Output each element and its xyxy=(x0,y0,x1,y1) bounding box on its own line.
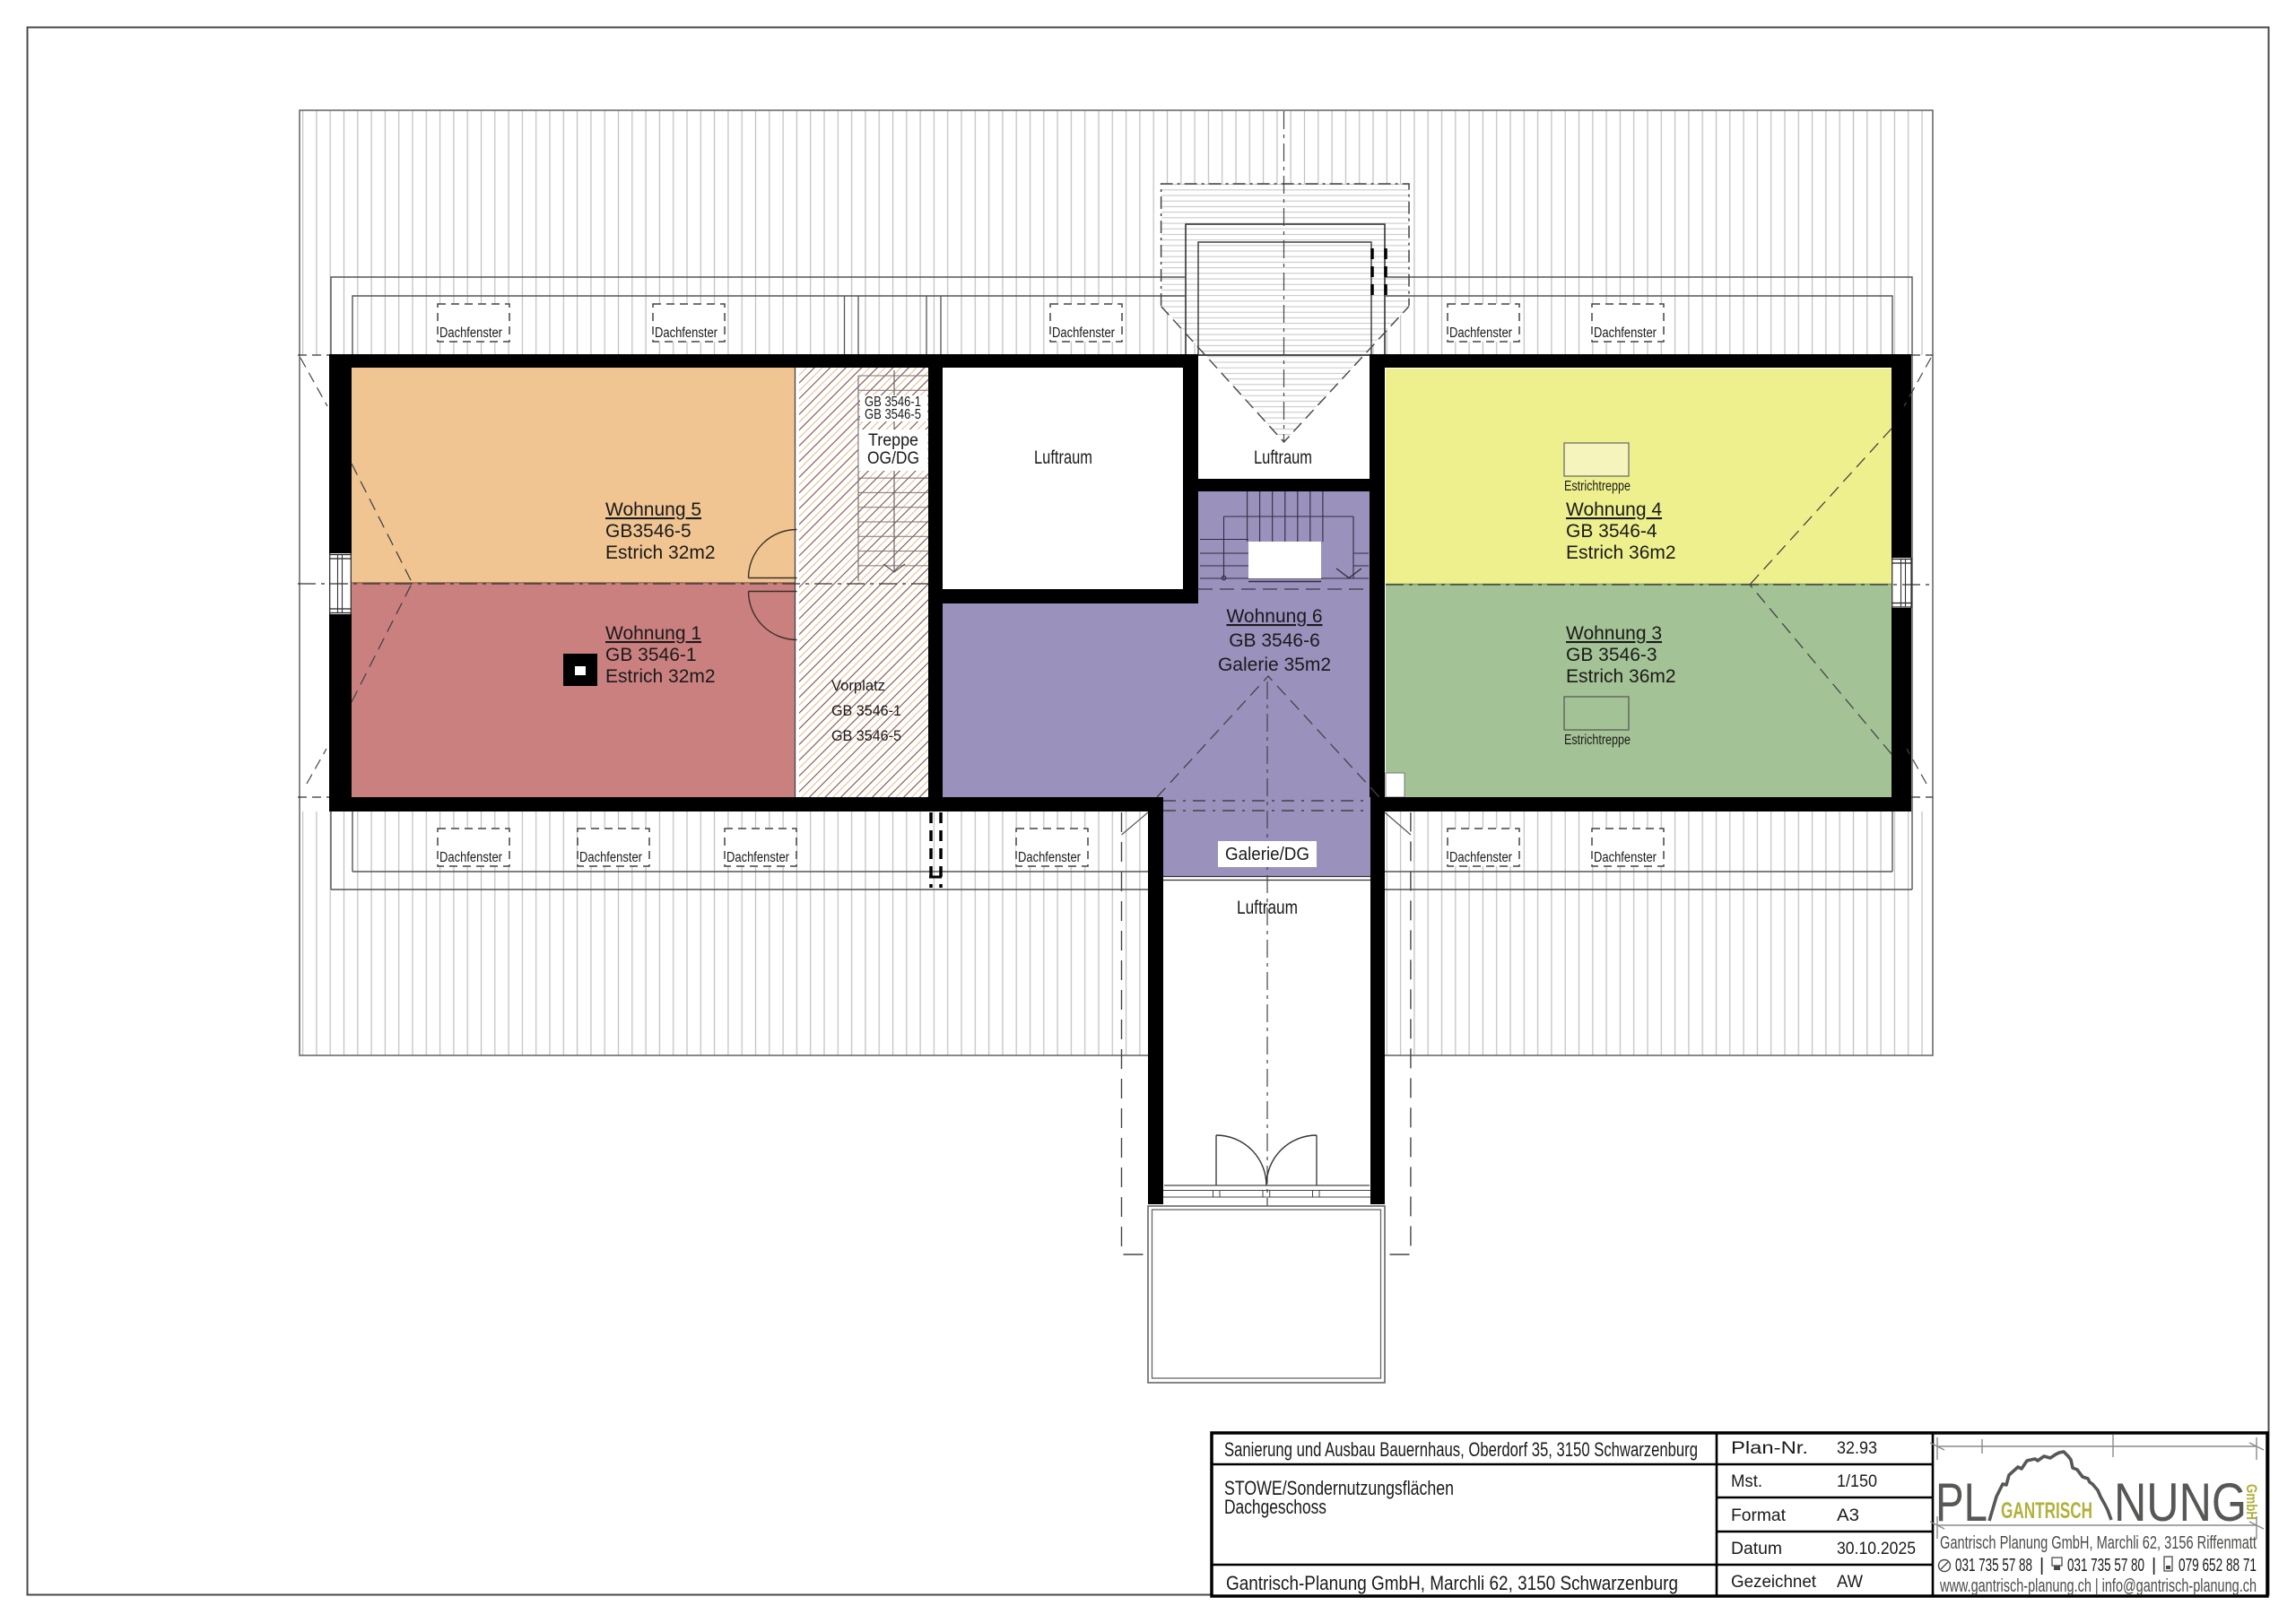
svg-text:Gezeichnet: Gezeichnet xyxy=(1731,1573,1817,1592)
svg-text:Dachfenster: Dachfenster xyxy=(1594,325,1657,341)
svg-text:Format: Format xyxy=(1731,1506,1787,1525)
svg-text:NUNG: NUNG xyxy=(2114,1472,2247,1532)
svg-text:Treppe: Treppe xyxy=(868,431,918,450)
svg-text:Plan-Nr.: Plan-Nr. xyxy=(1731,1439,1808,1458)
svg-text:Dachfenster: Dachfenster xyxy=(1449,325,1512,341)
svg-text:GB3546-5: GB3546-5 xyxy=(605,521,691,542)
svg-text:Dachfenster: Dachfenster xyxy=(726,850,789,865)
svg-text:Estrich 32m2: Estrich 32m2 xyxy=(605,542,716,563)
svg-text:|: | xyxy=(2039,1556,2044,1575)
svg-text:Galerie/DG: Galerie/DG xyxy=(1225,845,1309,864)
svg-text:32.93: 32.93 xyxy=(1837,1439,1877,1458)
svg-text:GB 3546-1: GB 3546-1 xyxy=(831,702,901,719)
svg-text:Estrich 36m2: Estrich 36m2 xyxy=(1566,666,1676,687)
svg-text:Gantrisch Planung GmbH, March: Gantrisch Planung GmbH, Marchli 62, 3156… xyxy=(1940,1533,2257,1553)
svg-text:Galerie 35m2: Galerie 35m2 xyxy=(1218,655,1331,675)
svg-text:079 652 88 71: 079 652 88 71 xyxy=(2179,1556,2257,1575)
svg-text:Dachfenster: Dachfenster xyxy=(579,850,642,865)
svg-text:GB 3546-5: GB 3546-5 xyxy=(831,727,901,744)
svg-text:031 735 57 80: 031 735 57 80 xyxy=(2067,1556,2144,1575)
svg-text:Dachfenster: Dachfenster xyxy=(1018,850,1081,865)
svg-text:GB 3546-3: GB 3546-3 xyxy=(1566,645,1657,665)
svg-text:Dachfenster: Dachfenster xyxy=(439,325,502,341)
svg-text:Luftraum: Luftraum xyxy=(1237,898,1298,918)
svg-text:Datum: Datum xyxy=(1731,1540,1782,1558)
svg-text:Estrich 32m2: Estrich 32m2 xyxy=(605,666,716,687)
svg-text:Dachfenster: Dachfenster xyxy=(439,850,502,865)
svg-text:30.10.2025: 30.10.2025 xyxy=(1837,1540,1916,1558)
svg-text:Luftraum: Luftraum xyxy=(1254,447,1312,468)
svg-text:Mst.: Mst. xyxy=(1731,1472,1762,1491)
svg-text:OG/DG: OG/DG xyxy=(867,449,919,468)
svg-text:PL: PL xyxy=(1935,1472,1987,1532)
svg-text:Dachfenster: Dachfenster xyxy=(1594,850,1657,865)
svg-text:GmbH: GmbH xyxy=(2243,1484,2260,1520)
svg-text:Wohnung 3: Wohnung 3 xyxy=(1566,623,1662,644)
svg-text:GB 3546-1: GB 3546-1 xyxy=(605,645,697,665)
svg-text:Dachfenster: Dachfenster xyxy=(1449,850,1512,865)
svg-text:Sanierung und Ausbau Bauernhau: Sanierung und Ausbau Bauernhaus, Oberdor… xyxy=(1224,1438,1698,1461)
svg-text:1/150: 1/150 xyxy=(1837,1472,1877,1491)
svg-text:Estrich 36m2: Estrich 36m2 xyxy=(1566,542,1676,563)
svg-text:GB 3546-6: GB 3546-6 xyxy=(1229,630,1320,651)
svg-text:Wohnung 1: Wohnung 1 xyxy=(605,623,701,644)
svg-text:Estrichtreppe: Estrichtreppe xyxy=(1564,479,1631,494)
svg-text:AW: AW xyxy=(1837,1573,1863,1592)
svg-text:Gantrisch-Planung GmbH, Marchl: Gantrisch-Planung GmbH, Marchli 62, 3150… xyxy=(1226,1572,1678,1594)
svg-text:GANTRISCH: GANTRISCH xyxy=(2001,1498,2092,1523)
svg-text:Wohnung 4: Wohnung 4 xyxy=(1566,499,1662,520)
svg-text:www.gantrisch-planung.ch | i: www.gantrisch-planung.ch | info@gantrisc… xyxy=(1939,1576,2257,1596)
svg-text:Dachfenster: Dachfenster xyxy=(1052,325,1115,341)
svg-text:031 735 57 88: 031 735 57 88 xyxy=(1955,1556,2032,1575)
svg-text:Wohnung 5: Wohnung 5 xyxy=(605,499,701,520)
svg-text:A3: A3 xyxy=(1837,1506,1859,1525)
svg-text:Vorplatz: Vorplatz xyxy=(831,677,885,694)
svg-text:GB 3546-5: GB 3546-5 xyxy=(865,407,921,422)
svg-text:GB 3546-4: GB 3546-4 xyxy=(1566,521,1657,542)
svg-text:Wohnung 6: Wohnung 6 xyxy=(1226,606,1322,627)
svg-text:Luftraum: Luftraum xyxy=(1034,447,1092,468)
svg-text:|: | xyxy=(2152,1556,2156,1575)
svg-text:Dachfenster: Dachfenster xyxy=(655,325,717,341)
svg-text:Estrichtreppe: Estrichtreppe xyxy=(1564,733,1631,748)
svg-text:Dachgeschoss: Dachgeschoss xyxy=(1224,1496,1326,1518)
